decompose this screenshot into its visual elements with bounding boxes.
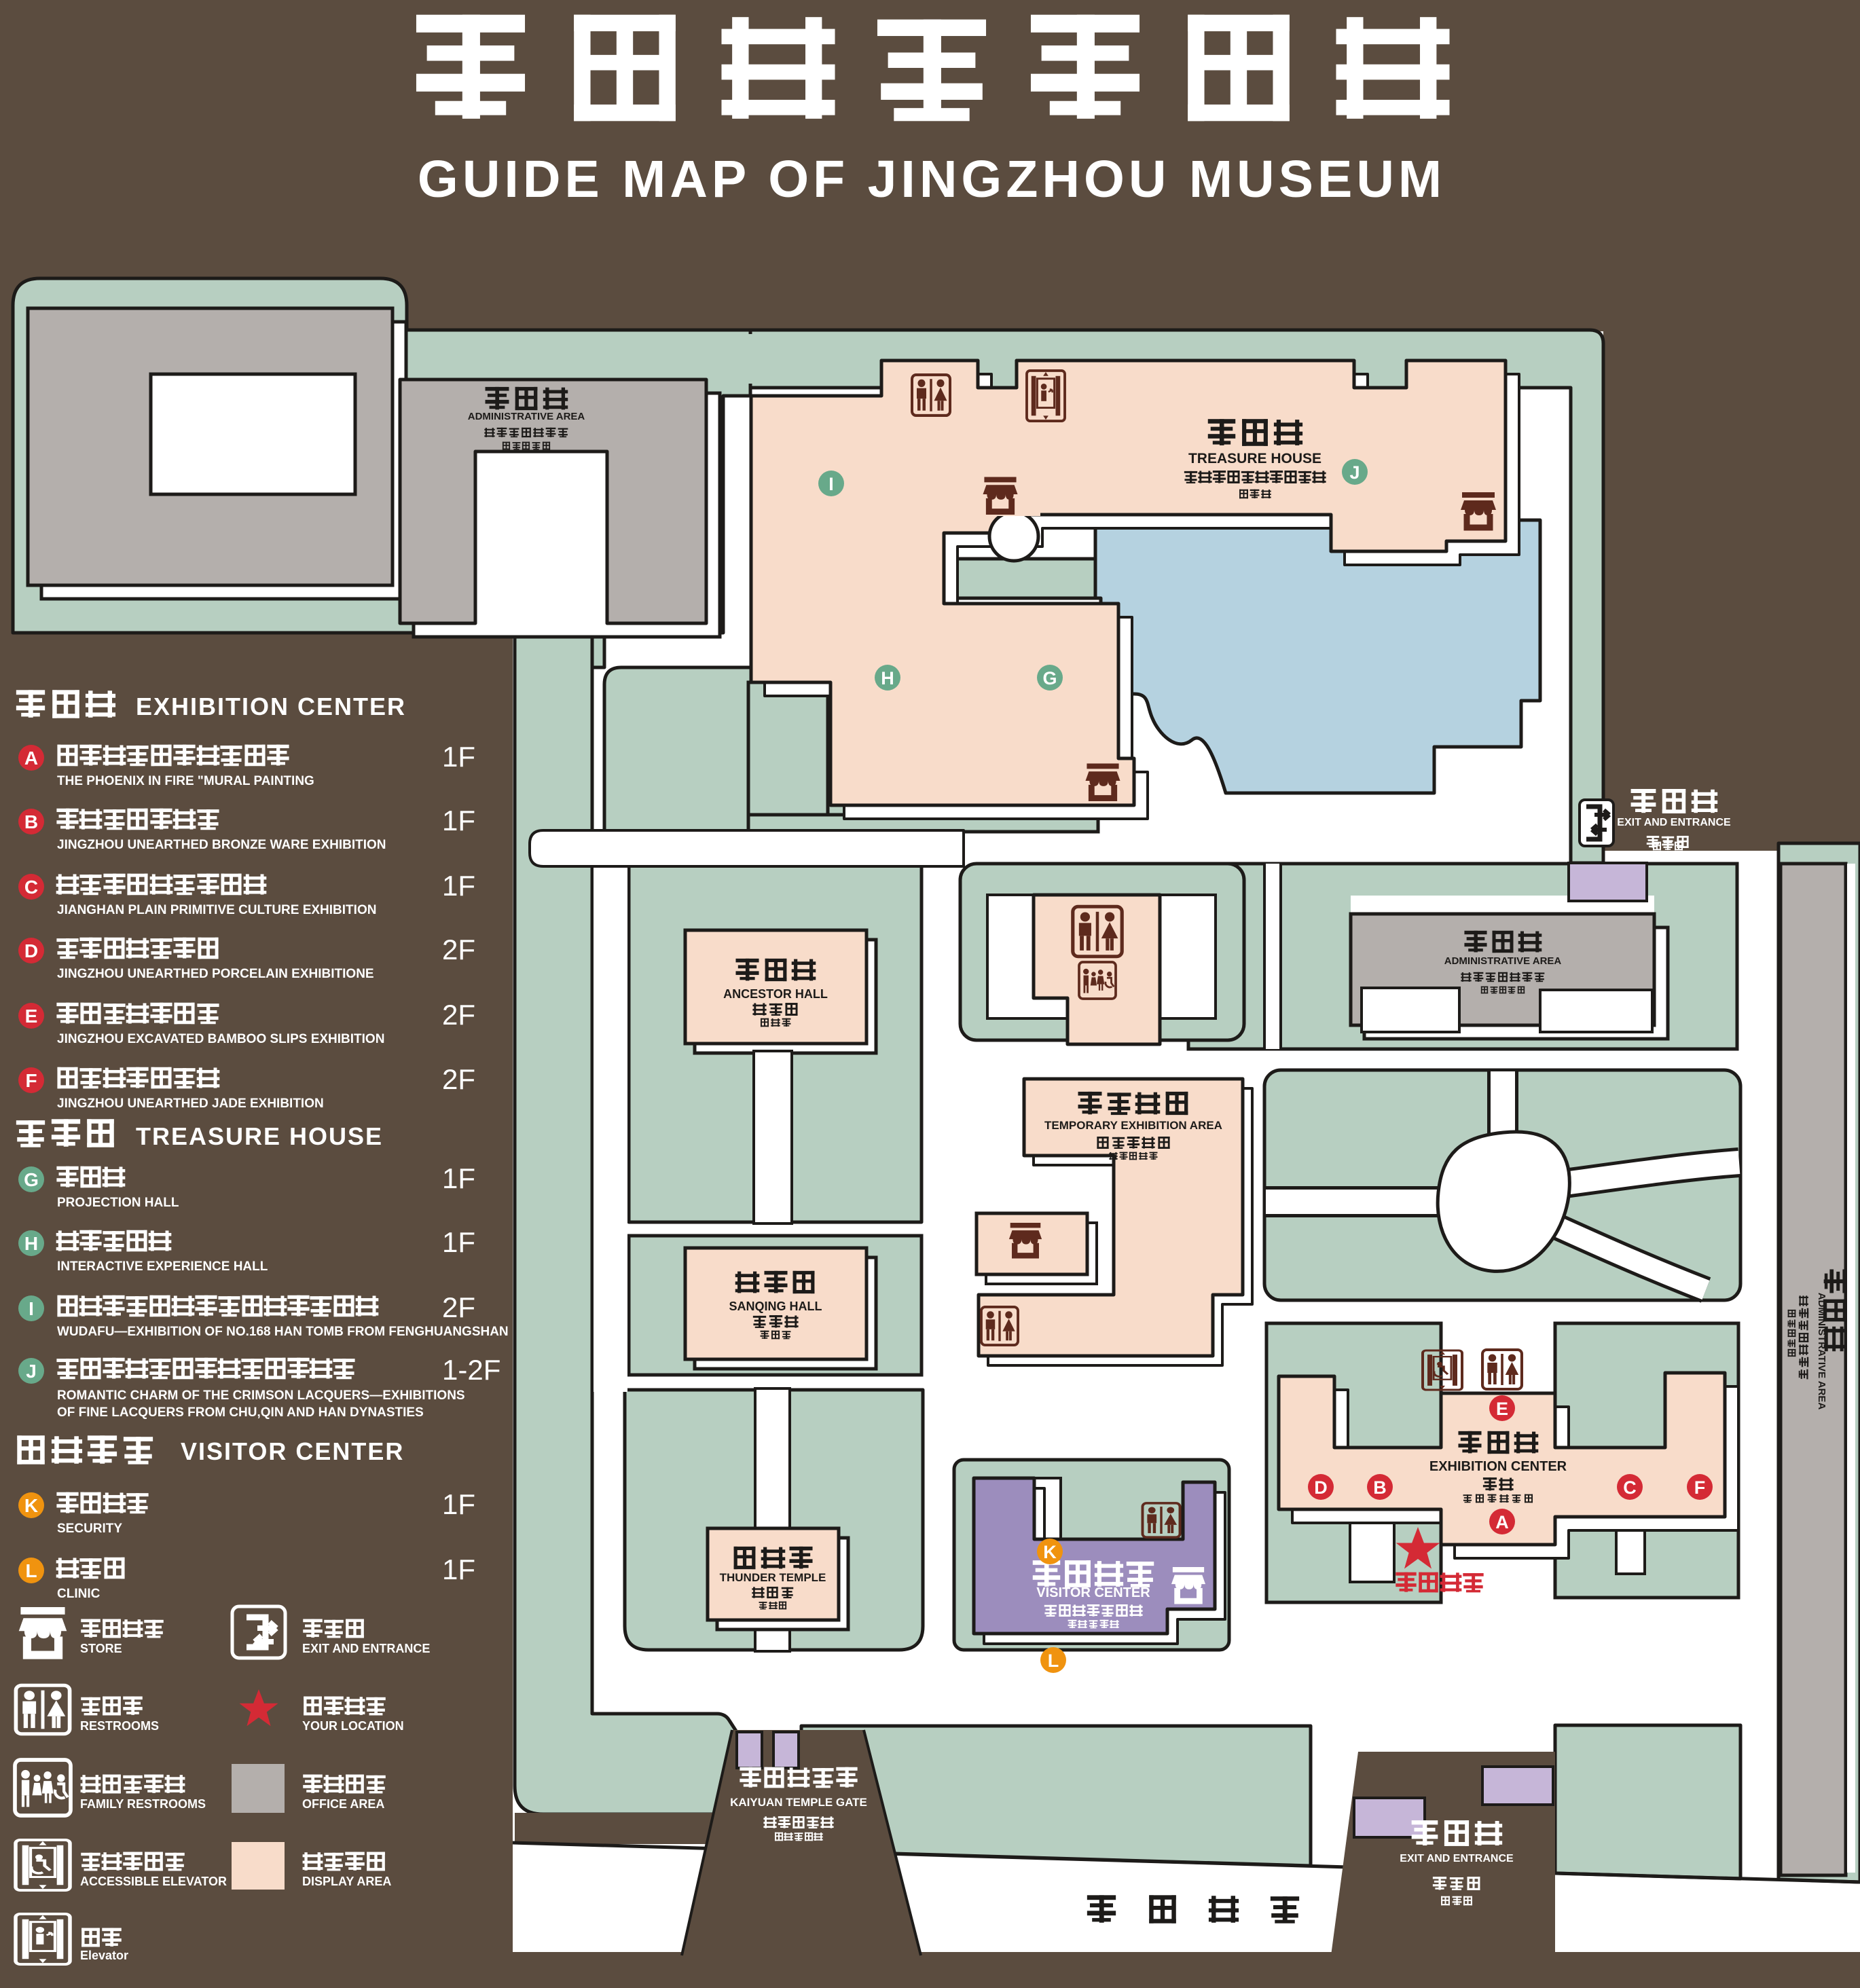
svg-text:SANQING HALL: SANQING HALL <box>729 1300 822 1313</box>
svg-text:INTERACTIVE EXPERIENCE HALL: INTERACTIVE EXPERIENCE HALL <box>57 1259 268 1274</box>
svg-text:WUDAFU—EXHIBITION OF NO.168 HA: WUDAFU—EXHIBITION OF NO.168 HAN TOMB FRO… <box>57 1325 509 1339</box>
svg-text:ADMINISTRATIVE AREA: ADMINISTRATIVE AREA <box>468 411 585 422</box>
svg-text:1-2F: 1-2F <box>442 1354 500 1386</box>
svg-text:VISITOR CENTER: VISITOR CENTER <box>1036 1585 1150 1600</box>
svg-text:1F: 1F <box>442 1226 475 1258</box>
svg-text:SECURITY: SECURITY <box>57 1522 122 1536</box>
svg-text:OFFICE AREA: OFFICE AREA <box>302 1797 384 1811</box>
svg-text:2F: 2F <box>442 999 475 1031</box>
svg-text:DISPLAY AREA: DISPLAY AREA <box>302 1875 391 1888</box>
svg-text:B: B <box>24 811 38 832</box>
svg-text:ADMINISTRATIVE AREA: ADMINISTRATIVE AREA <box>1444 955 1562 967</box>
svg-text:TREASURE HOUSE: TREASURE HOUSE <box>1188 451 1321 466</box>
svg-text:EXHIBITION CENTER: EXHIBITION CENTER <box>1429 1459 1567 1474</box>
svg-text:1F: 1F <box>442 1162 475 1194</box>
svg-text:I: I <box>29 1298 34 1319</box>
svg-text:STORE: STORE <box>80 1642 122 1655</box>
svg-text:OF FINE LACQUERS FROM CHU,QIN: OF FINE LACQUERS FROM CHU,QIN AND HAN DY… <box>57 1405 424 1420</box>
svg-text:D: D <box>24 940 38 961</box>
svg-text:VISITOR CENTER: VISITOR CENTER <box>181 1437 404 1465</box>
svg-text:L: L <box>1048 1651 1059 1671</box>
svg-text:RESTROOMS: RESTROOMS <box>80 1719 159 1733</box>
svg-text:2F: 2F <box>442 1063 475 1095</box>
svg-text:2F: 2F <box>442 934 475 965</box>
svg-text:EXIT AND ENTRANCE: EXIT AND ENTRANCE <box>1617 817 1731 828</box>
svg-text:JINGZHOU EXCAVATED BAMBOO SLIP: JINGZHOU EXCAVATED BAMBOO SLIPS EXHIBITI… <box>57 1032 384 1046</box>
svg-text:KAIYUAN TEMPLE GATE: KAIYUAN TEMPLE GATE <box>730 1796 867 1809</box>
svg-text:THUNDER TEMPLE: THUNDER TEMPLE <box>720 1571 826 1584</box>
svg-text:EXHIBITION CENTER: EXHIBITION CENTER <box>136 693 406 720</box>
svg-text:A: A <box>1495 1512 1509 1532</box>
svg-text:ADMINISTRATIVE AREA: ADMINISTRATIVE AREA <box>1816 1293 1827 1410</box>
svg-text:C: C <box>24 877 38 898</box>
svg-text:CLINIC: CLINIC <box>57 1587 101 1601</box>
svg-text:JINGZHOU UNEARTHED BRONZE WARE: JINGZHOU UNEARTHED BRONZE WARE EXHIBITIO… <box>57 838 386 852</box>
svg-text:K: K <box>1043 1542 1057 1562</box>
svg-text:G: G <box>24 1169 39 1190</box>
svg-text:GUIDE MAP OF JINGZHOU MUSEUM: GUIDE MAP OF JINGZHOU MUSEUM <box>418 150 1446 208</box>
svg-text:1F: 1F <box>442 1553 475 1585</box>
svg-text:E: E <box>25 1006 38 1027</box>
svg-text:I: I <box>828 474 834 494</box>
svg-text:JIANGHAN PLAIN PRIMITIVE CULTU: JIANGHAN PLAIN PRIMITIVE CULTURE EXHIBIT… <box>57 903 376 917</box>
svg-text:D: D <box>1314 1477 1328 1498</box>
svg-text:B: B <box>1373 1477 1387 1498</box>
svg-text:A: A <box>24 748 38 769</box>
svg-text:C: C <box>1623 1477 1637 1498</box>
svg-text:TEMPORARY EXHIBITION AREA: TEMPORARY EXHIBITION AREA <box>1044 1119 1222 1132</box>
svg-text:ACCESSIBLE ELEVATOR: ACCESSIBLE ELEVATOR <box>80 1875 227 1888</box>
svg-text:EXIT AND ENTRANCE: EXIT AND ENTRANCE <box>1400 1853 1514 1864</box>
svg-text:1F: 1F <box>442 870 475 902</box>
svg-text:PROJECTION HALL: PROJECTION HALL <box>57 1196 179 1210</box>
svg-text:1F: 1F <box>442 741 475 773</box>
svg-text:F: F <box>25 1070 37 1091</box>
svg-text:JINGZHOU UNEARTHED JADE EXHIBI: JINGZHOU UNEARTHED JADE EXHIBITION <box>57 1097 324 1111</box>
svg-text:FAMILY RESTROOMS: FAMILY RESTROOMS <box>80 1797 206 1811</box>
svg-text:YOUR LOCATION: YOUR LOCATION <box>302 1719 404 1733</box>
svg-text:J: J <box>26 1361 37 1382</box>
svg-text:H: H <box>24 1233 38 1254</box>
svg-text:1F: 1F <box>442 805 475 836</box>
svg-text:J: J <box>1349 462 1360 483</box>
svg-text:1F: 1F <box>442 1488 475 1520</box>
svg-text:E: E <box>1496 1399 1508 1419</box>
svg-text:H: H <box>881 668 894 688</box>
svg-text:EXIT AND ENTRANCE: EXIT AND ENTRANCE <box>302 1642 430 1655</box>
svg-text:ROMANTIC CHARM OF THE CRIMSON: ROMANTIC CHARM OF THE CRIMSON LACQUERS—E… <box>57 1388 465 1403</box>
svg-text:TREASURE HOUSE: TREASURE HOUSE <box>136 1122 383 1150</box>
svg-text:F: F <box>1694 1477 1706 1498</box>
svg-text:L: L <box>25 1560 37 1581</box>
svg-text:JINGZHOU UNEARTHED PORCELAIN E: JINGZHOU UNEARTHED PORCELAIN EXHIBITIONE <box>57 967 374 981</box>
svg-text:2F: 2F <box>442 1291 475 1323</box>
svg-text:ANCESTOR HALL: ANCESTOR HALL <box>723 987 828 1001</box>
svg-text:Elevator: Elevator <box>80 1949 128 1962</box>
svg-text:K: K <box>24 1495 38 1516</box>
svg-text:THE PHOENIX IN FIRE "MURAL PAI: THE PHOENIX IN FIRE "MURAL PAINTING <box>57 774 314 788</box>
svg-text:G: G <box>1042 668 1057 688</box>
